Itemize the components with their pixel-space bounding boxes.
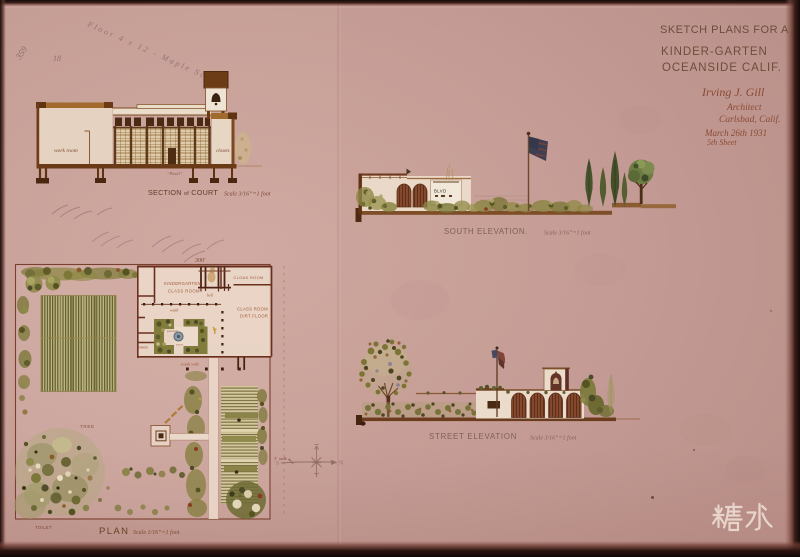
svg-text:OCEANSIDE CALIF.: OCEANSIDE CALIF. [662,62,782,74]
svg-text:STREET ELEVATION: STREET ELEVATION [429,432,517,441]
svg-text:PLAN: PLAN [99,526,129,537]
svg-text:Carlsbad, Calif.: Carlsbad, Calif. [719,114,781,125]
svg-text:CLASS ROOM: CLASS ROOM [168,289,200,294]
svg-text:DIRT FLOOR: DIRT FLOOR [240,314,268,319]
svg-text:5th Sheet: 5th Sheet [707,138,737,147]
svg-text:Irving J. Gill: Irving J. Gill [701,85,765,99]
svg-text:work room: work room [54,148,78,154]
svg-text:March 26th 1931: March 26th 1931 [704,128,767,138]
svg-text:Scale 3/16”=1 foot: Scale 3/16”=1 foot [224,191,271,198]
svg-text:SKETCH PLANS FOR A: SKETCH PLANS FOR A [660,24,789,36]
svg-text:SOUTH ELEVATION.: SOUTH ELEVATION. [444,227,528,236]
svg-text:BLVD: BLVD [434,189,447,194]
svg-text:300': 300' [194,258,206,264]
svg-text:KINDER-GARTEN: KINDER-GARTEN [661,46,768,58]
svg-text:“Pintel”: “Pintel” [167,171,183,176]
svg-text:TOILET: TOILET [35,525,52,530]
svg-text:south walk: south walk [181,362,199,367]
svg-text:walk: walk [279,456,287,461]
svg-text:toilets: toilets [139,346,149,350]
svg-text:TREE: TREE [80,424,95,429]
svg-text:Scale 3/16”=1 foot: Scale 3/16”=1 foot [530,435,577,442]
svg-text:Architect: Architect [726,103,762,113]
svg-text:fountain: fountain [167,329,179,333]
svg-text:closets: closets [216,149,230,154]
svg-text:KINDERGARTEN: KINDERGARTEN [164,281,201,286]
svg-text:court: court [176,343,184,347]
svg-text:walk: walk [170,308,179,313]
svg-text:CLASS ROOM: CLASS ROOM [237,307,268,312]
svg-text:Scale 3/16”=1 foot: Scale 3/16”=1 foot [544,230,591,237]
svg-text:Scale 1/16”=1 foot: Scale 1/16”=1 foot [133,529,180,536]
svg-text:bell: bell [207,293,214,298]
svg-text:18: 18 [53,54,61,63]
svg-text:CLOAK ROOM: CLOAK ROOM [234,275,264,280]
svg-text:S: S [276,461,279,467]
svg-text:SECTION of COURT: SECTION of COURT [148,188,218,197]
